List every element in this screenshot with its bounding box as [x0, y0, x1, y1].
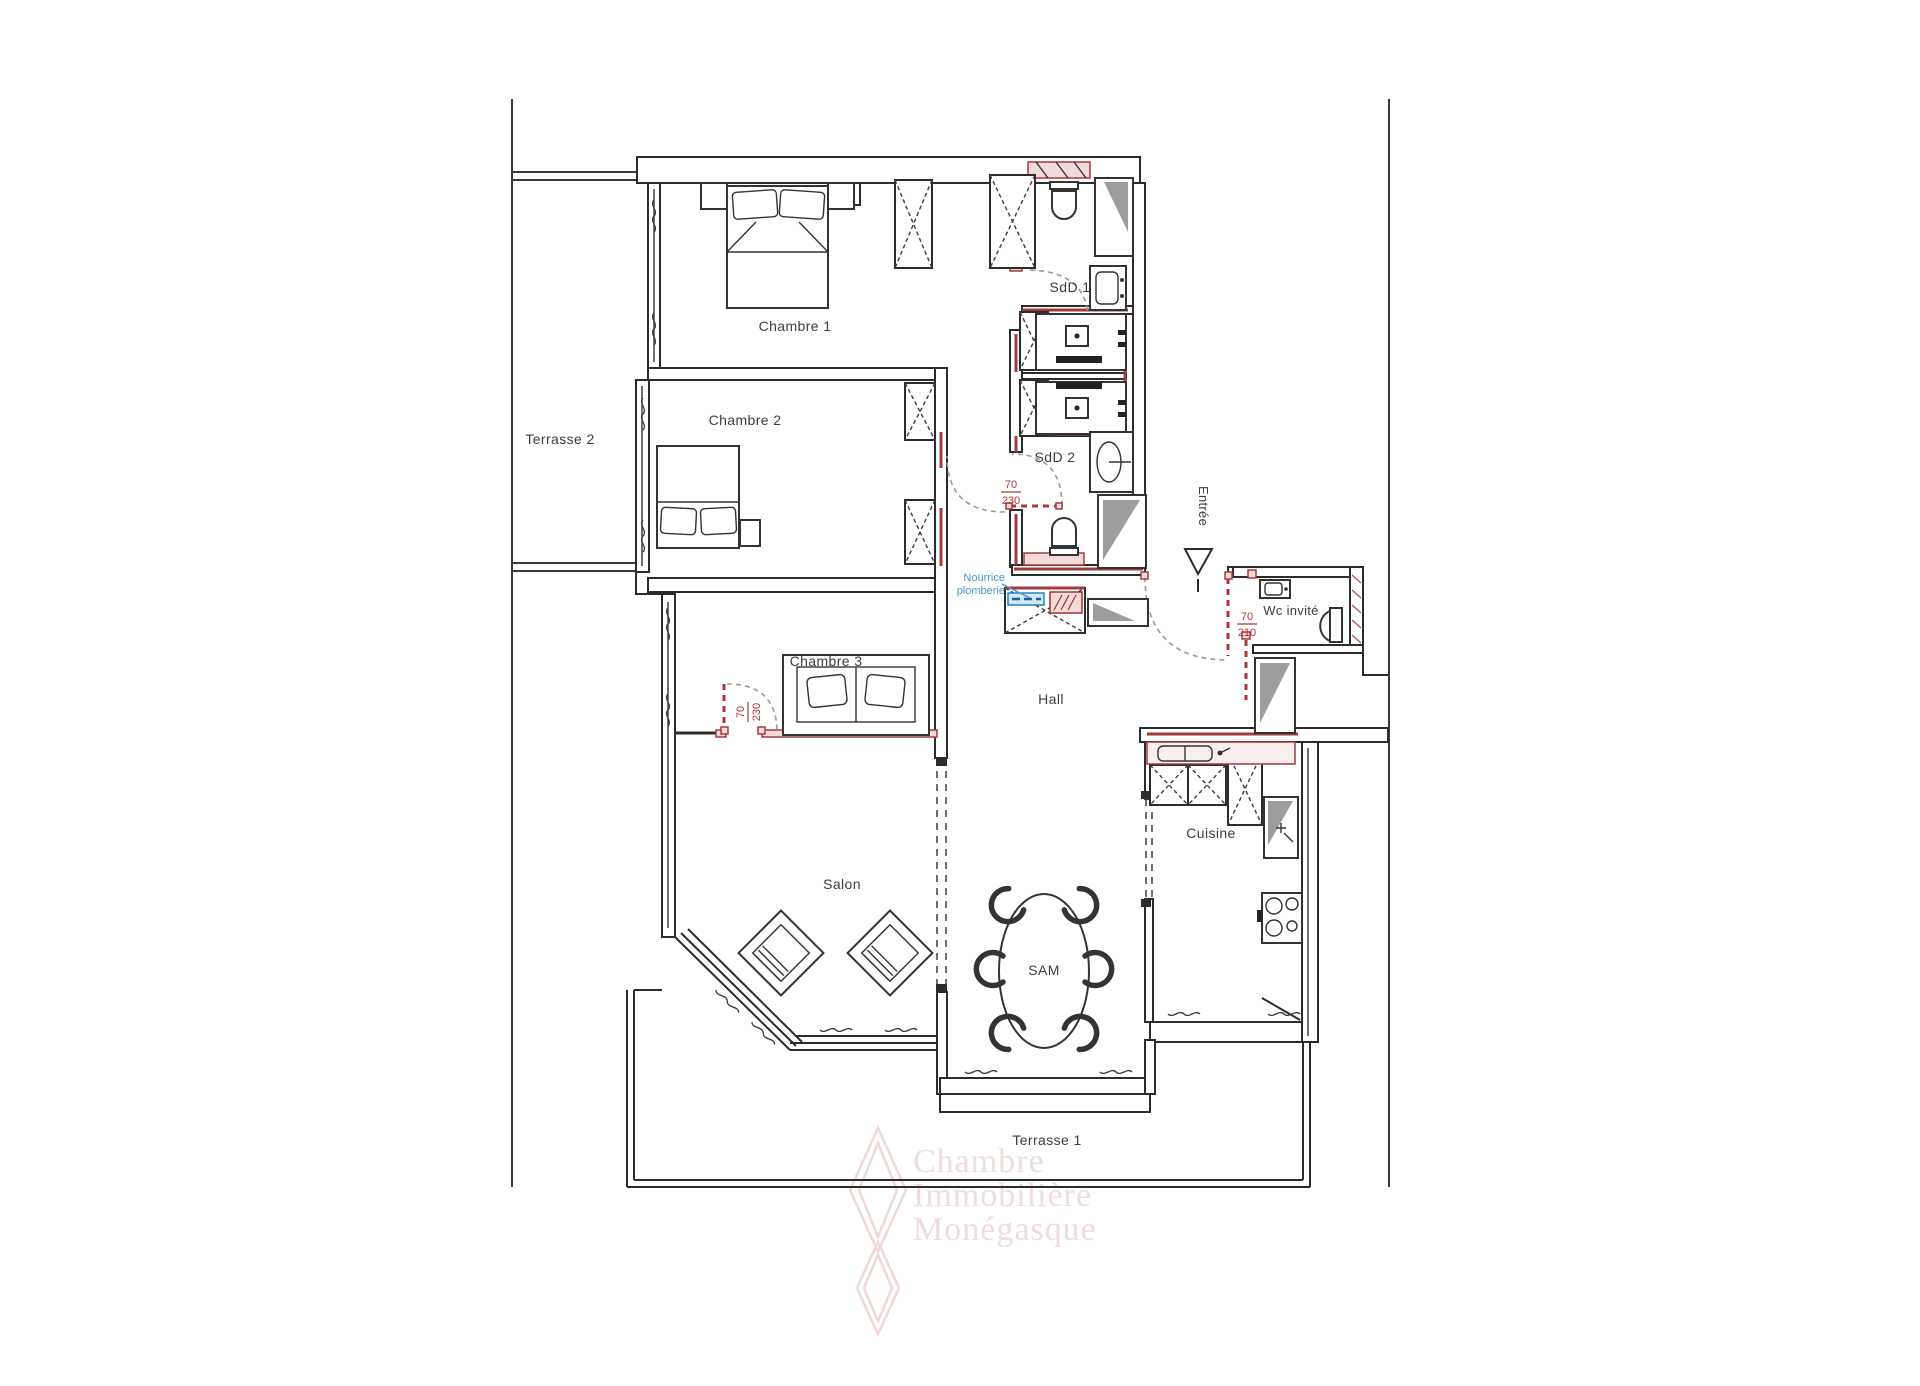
shelf-panel [1088, 599, 1148, 626]
door-arc-chambre2 [947, 456, 1005, 512]
label-nourrice-2: plomberie [957, 585, 1005, 597]
svg-text:70: 70 [735, 706, 747, 718]
watermark-line-3: Monégasque [913, 1211, 1097, 1248]
label-chambre3: Chambre 3 [790, 653, 863, 669]
dimension-sdd2-door: 70 230 [1001, 479, 1021, 507]
svg-text:210: 210 [1238, 627, 1256, 639]
wardrobe [905, 383, 935, 440]
toilet [1050, 182, 1078, 219]
label-terrasse1: Terrasse 1 [1012, 1132, 1081, 1148]
kitchen-sink [1147, 742, 1295, 764]
shower-glass-panel [1095, 178, 1133, 256]
floor-plan-drawing: Chambre Immobilière Monégasque [0, 0, 1920, 1386]
electrical-panel [1050, 592, 1082, 613]
wall-ch1-ch2 [648, 368, 935, 380]
watermark-line-1: Chambre [913, 1143, 1045, 1180]
label-chambre2: Chambre 2 [709, 412, 782, 428]
sink [1260, 580, 1290, 598]
shower-glass-panel [1098, 495, 1146, 568]
armchair [739, 911, 824, 996]
dimension-wc-door: 70 210 [1237, 611, 1257, 639]
shower-tray [1036, 314, 1126, 370]
wardrobe [905, 500, 935, 564]
wall-ch2-ch3 [648, 578, 937, 592]
svg-text:70: 70 [1241, 611, 1253, 623]
label-sdd1: SdD 1 [1050, 279, 1091, 295]
label-nourrice-1: Nourrice [963, 572, 1005, 584]
door-arc-entrance [1145, 577, 1228, 660]
window-sam-south [940, 1078, 1152, 1094]
label-cuisine: Cuisine [1186, 825, 1236, 841]
kitchen-cabinet [1150, 765, 1188, 805]
svg-text:230: 230 [751, 703, 763, 721]
wall-sam-east [1145, 1040, 1155, 1094]
floor-plan-page: Chambre Immobilière Monégasque [0, 0, 1920, 1386]
wall-kitchen-east [1302, 742, 1318, 1042]
cupboard-panel [1255, 658, 1295, 733]
entrance-arrow-icon [1185, 549, 1212, 592]
cupboard-panel [1264, 797, 1298, 858]
agency-watermark: Chambre Immobilière Monégasque [850, 1128, 1097, 1334]
wardrobe [895, 180, 932, 268]
wardrobe [990, 175, 1035, 268]
svg-text:70: 70 [1005, 479, 1017, 491]
sink [1090, 432, 1133, 492]
window-marks [642, 200, 1300, 1073]
label-entree: Entrée [1196, 486, 1211, 526]
label-wc-invite: Wc invité [1263, 603, 1318, 618]
sink [1090, 266, 1126, 310]
label-hall: Hall [1038, 691, 1064, 707]
watermark-line-2: Immobilière [913, 1177, 1092, 1214]
wall-kitchen-west-b [1145, 899, 1153, 1022]
wall-shower-divider [1022, 373, 1126, 379]
label-sam: SAM [1028, 962, 1060, 978]
svg-text:230: 230 [1002, 495, 1020, 507]
label-chambre1: Chambre 1 [759, 318, 832, 334]
label-salon: Salon [823, 876, 861, 892]
double-bed [657, 446, 760, 548]
cooktop [1257, 893, 1302, 943]
label-sdd2: SdD 2 [1035, 449, 1076, 465]
armchair [848, 911, 933, 996]
kitchen-cabinet [1188, 765, 1226, 805]
window-kitchen-south [1150, 1022, 1302, 1042]
shower-tray [1036, 382, 1126, 434]
wall-wc-south [1253, 645, 1363, 653]
diamond-logo-icon [850, 1128, 906, 1334]
toilet [1050, 518, 1078, 555]
toilet [1320, 608, 1342, 642]
dimension-ch3-door: 70 230 [735, 702, 763, 722]
wall-wc-east [1350, 567, 1363, 653]
label-terrasse2: Terrasse 2 [525, 431, 594, 447]
double-bed [701, 183, 854, 308]
